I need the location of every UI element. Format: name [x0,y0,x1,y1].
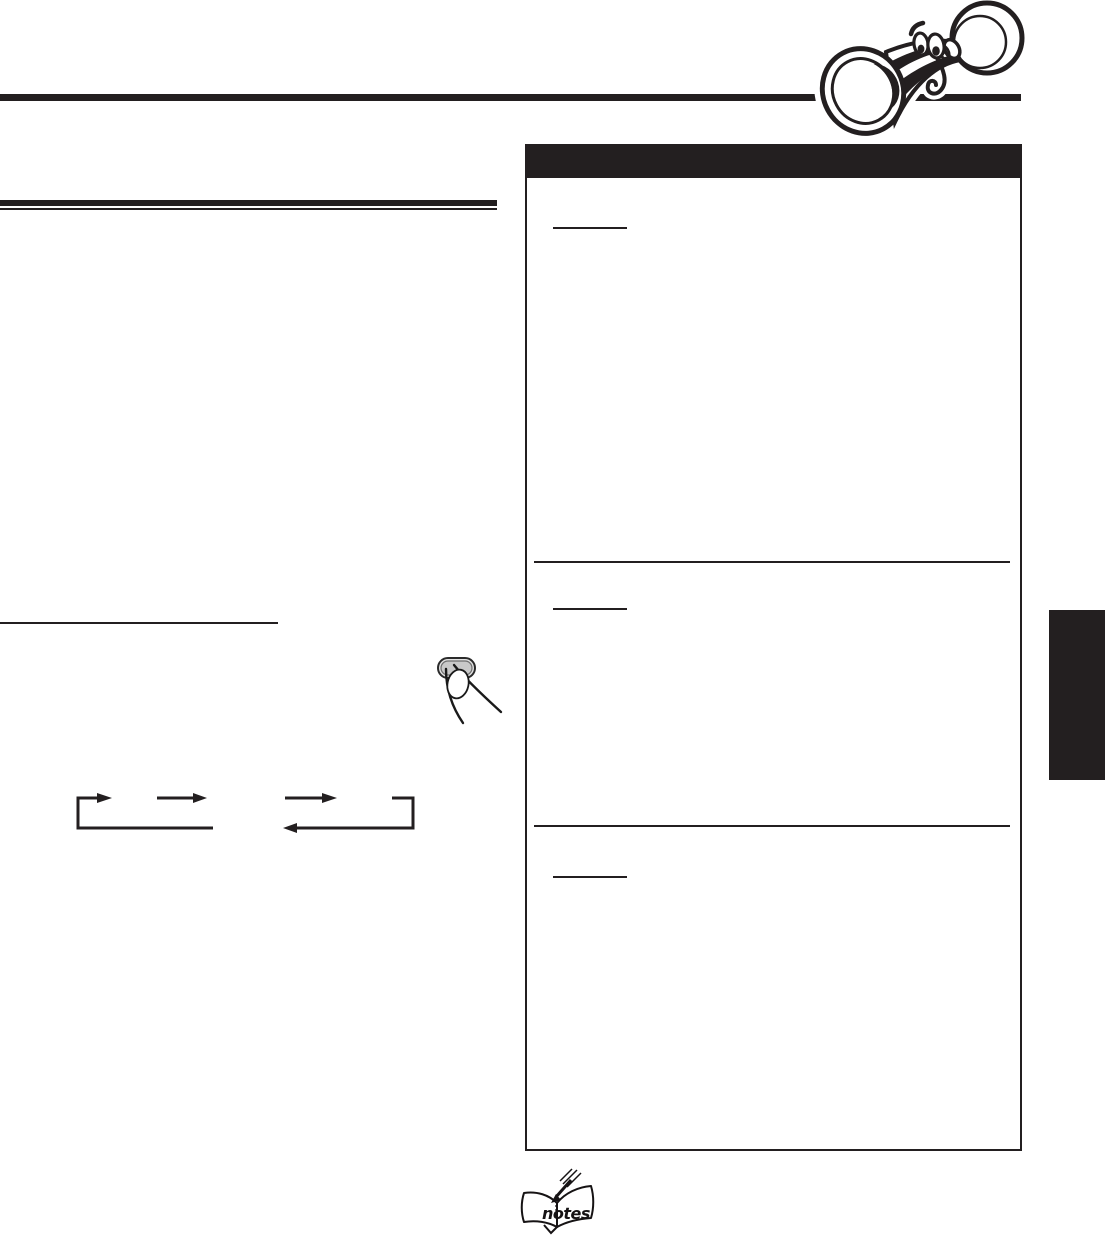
notes-icon: notes [515,1170,605,1235]
horn-bulb [952,3,1022,73]
subheading-underline [0,622,278,624]
panel-divider-2 [534,825,1010,827]
horn-icon [812,0,1030,142]
heading-rule-thin [0,208,497,210]
manual-page: .heading-underline{position:absolute;} n… [0,0,1106,1235]
page-edge-tab [1049,610,1105,780]
notes-label: notes [542,1204,590,1223]
panel-section3-underline [553,876,627,878]
arrow-right-1 [97,793,112,803]
panel-divider-1 [534,561,1010,563]
panel-section1-underline [553,227,627,229]
arrow-right-3 [322,793,337,803]
heading-rule-thick [0,200,497,206]
side-panel [525,144,1022,1151]
arrow-right-2 [193,793,207,803]
side-panel-header-bar [525,144,1022,178]
cycle-diagram [60,775,440,845]
finger-press-button-icon [415,645,520,745]
arrow-left-return [283,823,297,833]
panel-section2-underline [553,608,627,610]
